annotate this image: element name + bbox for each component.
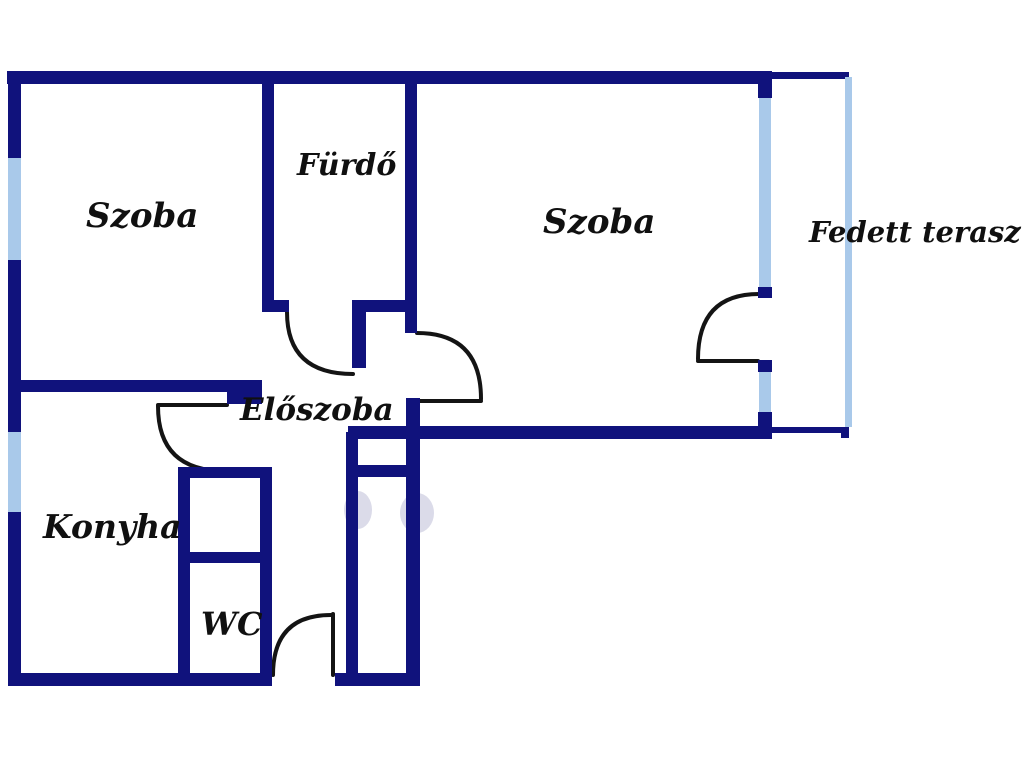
door-arc-konyha bbox=[158, 406, 225, 471]
room-label-eloszoba: Előszoba bbox=[240, 395, 394, 426]
wall-furdo-right bbox=[405, 84, 417, 333]
wall-wc-divider bbox=[178, 552, 272, 563]
wall-hall-stub bbox=[352, 310, 366, 368]
wall-right-block-bottom bbox=[758, 412, 772, 439]
room-label-wc: WC bbox=[201, 608, 262, 640]
wall-wc-top bbox=[178, 467, 272, 478]
door-arc-szoba-right bbox=[417, 333, 481, 399]
window-left-lower bbox=[8, 432, 21, 512]
wall-right-block-mid bbox=[758, 287, 772, 298]
wall-wc-right bbox=[260, 467, 272, 686]
wall-szoba-left-bottom bbox=[18, 380, 262, 392]
room-label-szoba-right: Szoba bbox=[543, 205, 655, 239]
wall-right-block-low bbox=[758, 360, 772, 372]
room-label-szoba-left: Szoba bbox=[86, 199, 198, 233]
room-label-furdo: Fürdő bbox=[297, 151, 396, 181]
wall-right-stub-top bbox=[758, 72, 772, 98]
wall-szoba-furdo-divider bbox=[262, 84, 274, 312]
wall-hall-right-lower bbox=[406, 398, 420, 686]
wall-top-terrace bbox=[763, 72, 849, 79]
window-right-lower bbox=[759, 372, 771, 412]
wall-terrace-corner-tick bbox=[841, 427, 849, 438]
wall-furdo-bottom-left bbox=[262, 300, 289, 312]
floorplan-canvas: Szoba Fürdő Szoba Fedett terasz Előszoba… bbox=[0, 0, 1024, 768]
wall-shaft-connector bbox=[348, 465, 420, 477]
wall-top bbox=[7, 71, 772, 84]
wall-terrace-bottom bbox=[770, 427, 844, 433]
wall-bottom-left bbox=[8, 673, 270, 686]
window-right-upper bbox=[759, 98, 771, 287]
door-arc-entry bbox=[273, 615, 331, 675]
door-arc-furdo bbox=[287, 312, 353, 374]
room-label-konyha: Konyha bbox=[43, 510, 182, 543]
room-label-fedett-terasz: Fedett terasz bbox=[809, 218, 1021, 247]
window-terrace-right bbox=[845, 77, 852, 427]
wall-shaft-left bbox=[346, 432, 358, 686]
window-left-upper bbox=[8, 158, 21, 260]
wall-szoba-big-bottom bbox=[348, 426, 772, 439]
door-arc-terasz bbox=[698, 294, 759, 359]
wall-wc-left bbox=[178, 467, 190, 686]
